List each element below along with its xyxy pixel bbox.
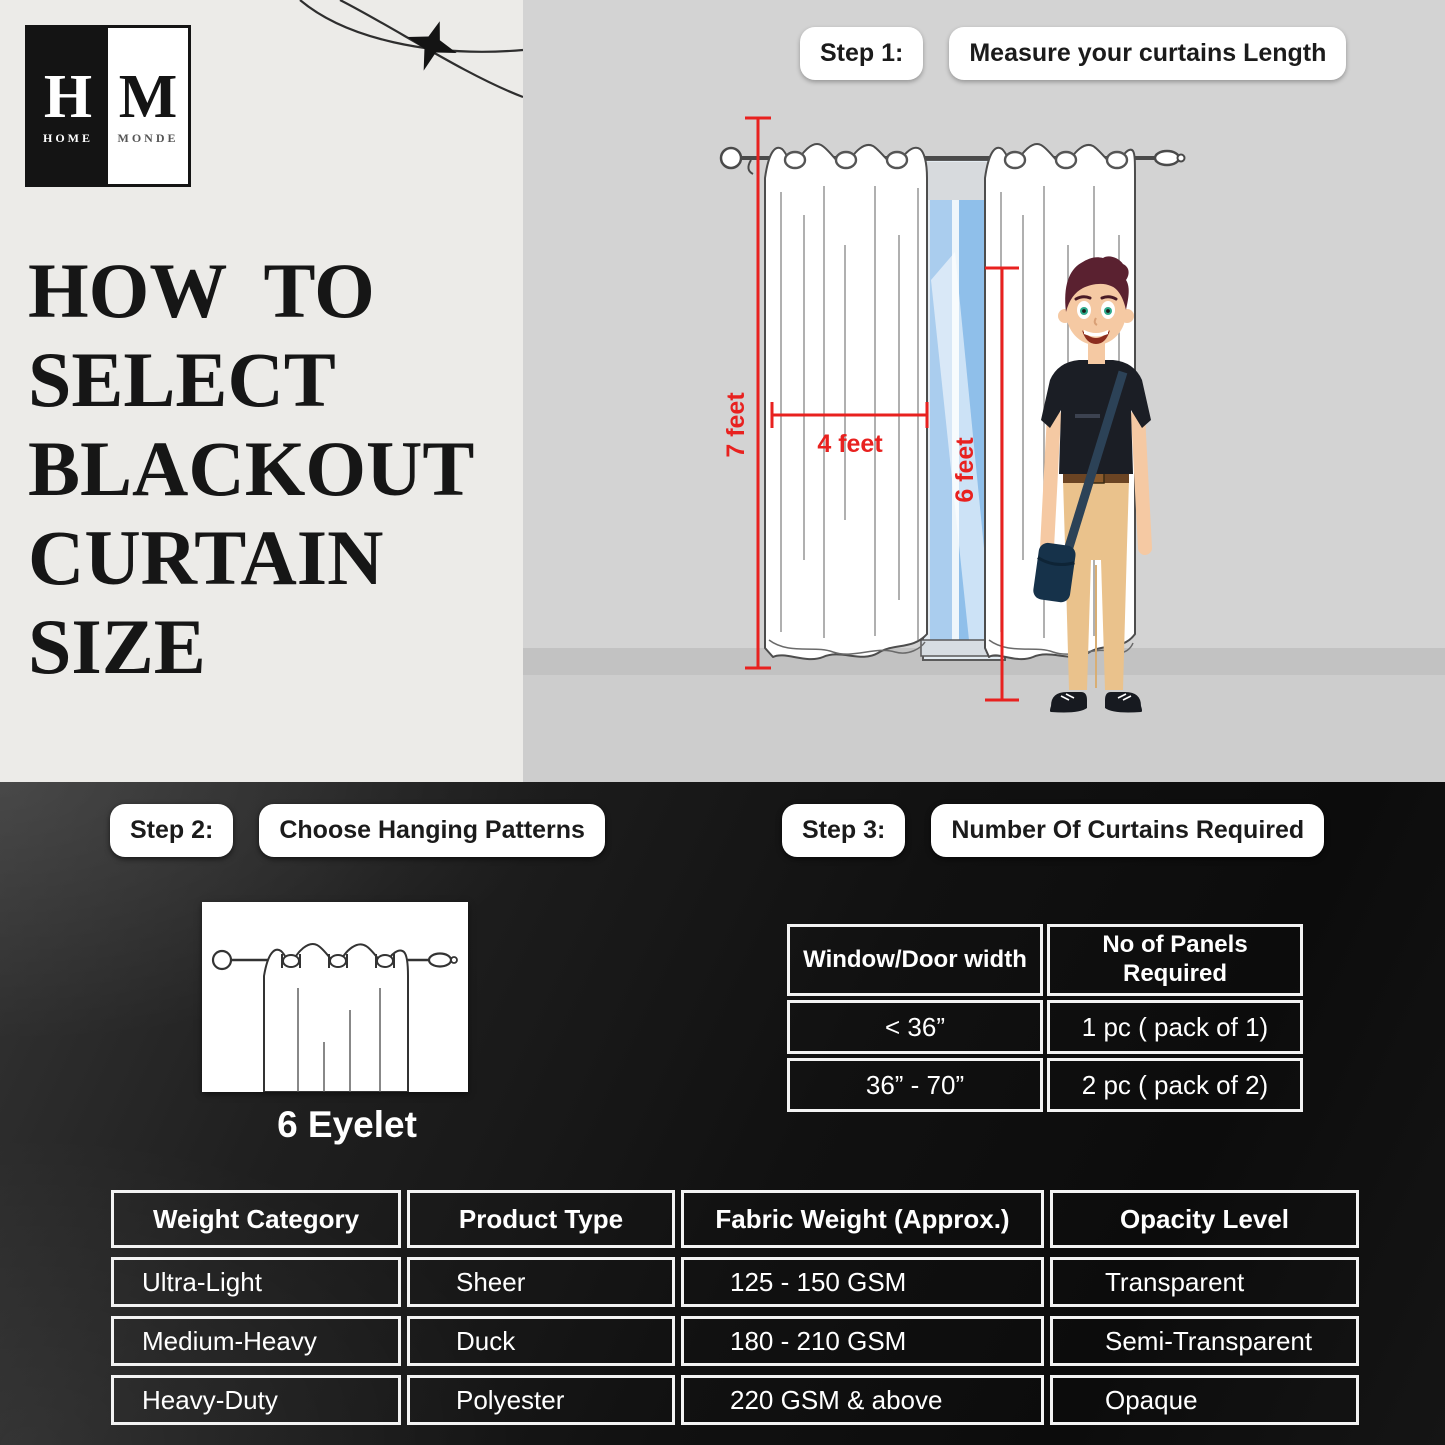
rod-finial-right <box>1155 151 1179 165</box>
eyelet-pattern-illustration <box>202 902 468 1092</box>
table-row: 36” - 70” 2 pc ( pack of 2) <box>787 1058 1303 1112</box>
left-panel: H HOME M MONDE HOW TO SELECT BLACKOUT CU… <box>0 0 523 782</box>
table-cell: Duck <box>407 1316 675 1366</box>
panels-table-header-count: No of Panels Required <box>1047 924 1303 996</box>
fabric-table-header: Weight Category <box>111 1190 401 1248</box>
measure-label-4-feet: 4 feet <box>817 430 883 458</box>
title-line-4: CURTAIN <box>28 513 518 602</box>
step3-label-pill: Step 3: <box>782 804 905 857</box>
table-cell: Polyester <box>407 1375 675 1425</box>
logo-right-half: M MONDE <box>108 28 188 184</box>
title-line-5: SIZE <box>28 602 518 691</box>
grommets-left <box>785 152 907 168</box>
table-cell: < 36” <box>787 1000 1043 1054</box>
logo-letter-m: M <box>119 67 178 127</box>
step1-text-pill: Measure your curtains Length <box>949 27 1346 80</box>
measure-label-6-feet: 6 feet <box>951 437 979 503</box>
table-cell: Transparent <box>1050 1257 1359 1307</box>
grommets-right <box>1005 152 1127 168</box>
page-title: HOW TO SELECT BLACKOUT CURTAIN SIZE <box>28 246 518 691</box>
bag <box>1032 542 1077 604</box>
brand-logo: H HOME M MONDE <box>25 25 191 187</box>
table-row: < 36” 1 pc ( pack of 1) <box>787 1000 1303 1054</box>
table-cell: Medium-Heavy <box>111 1316 401 1366</box>
step2-header: Step 2: Choose Hanging Patterns <box>110 804 605 857</box>
eyelet-caption: 6 Eyelet <box>214 1104 480 1146</box>
table-cell: Ultra-Light <box>111 1257 401 1307</box>
title-line-2: SELECT <box>28 335 518 424</box>
panels-table-header-width: Window/Door width <box>787 924 1043 996</box>
logo-word-monde: MONDE <box>118 131 179 146</box>
table-cell: Semi-Transparent <box>1050 1316 1359 1366</box>
logo-word-home: HOME <box>43 131 93 146</box>
step3-text-pill: Number Of Curtains Required <box>931 804 1324 857</box>
table-cell: 36” - 70” <box>787 1058 1043 1112</box>
eyelet-pattern-card <box>202 902 468 1092</box>
curtain-scene-illustration: 7 feet 4 feet 6 feet <box>523 0 1445 782</box>
left-curtain-panel <box>765 144 927 659</box>
infographic-page: H HOME M MONDE HOW TO SELECT BLACKOUT CU… <box>0 0 1445 1445</box>
floor <box>523 675 1445 782</box>
step2-label-pill: Step 2: <box>110 804 233 857</box>
table-cell: Opaque <box>1050 1375 1359 1425</box>
panels-required-table: Window/Door width No of Panels Required … <box>783 920 1307 1116</box>
step1-label-pill: Step 1: <box>800 27 923 80</box>
logo-left-half: H HOME <box>28 28 108 184</box>
title-line-3: BLACKOUT <box>28 424 518 513</box>
step2-text-pill: Choose Hanging Patterns <box>259 804 605 857</box>
table-cell: 125 - 150 GSM <box>681 1257 1044 1307</box>
step3-header: Step 3: Number Of Curtains Required <box>782 804 1324 857</box>
table-cell: 1 pc ( pack of 1) <box>1047 1000 1303 1054</box>
table-row: Ultra-Light Sheer 125 - 150 GSM Transpar… <box>111 1257 1359 1307</box>
bottom-section: Step 2: Choose Hanging Patterns Step 3: … <box>0 782 1445 1445</box>
step1-header: Step 1: Measure your curtains Length <box>800 27 1346 80</box>
step1-panel: 7 feet 4 feet 6 feet <box>523 0 1445 782</box>
table-cell: Heavy-Duty <box>111 1375 401 1425</box>
fabric-weight-table: Weight Category Product Type Fabric Weig… <box>105 1181 1365 1434</box>
fabric-table-header: Opacity Level <box>1050 1190 1359 1248</box>
table-cell: 180 - 210 GSM <box>681 1316 1044 1366</box>
fabric-table-header: Fabric Weight (Approx.) <box>681 1190 1044 1248</box>
table-row: Medium-Heavy Duck 180 - 210 GSM Semi-Tra… <box>111 1316 1359 1366</box>
table-cell: Sheer <box>407 1257 675 1307</box>
table-cell: 220 GSM & above <box>681 1375 1044 1425</box>
title-line-1: HOW TO <box>28 246 518 335</box>
measure-label-7-feet: 7 feet <box>722 392 750 458</box>
table-row: Heavy-Duty Polyester 220 GSM & above Opa… <box>111 1375 1359 1425</box>
logo-letter-h: H <box>44 67 92 127</box>
table-cell: 2 pc ( pack of 2) <box>1047 1058 1303 1112</box>
rod-finial-left <box>721 148 741 168</box>
fabric-table-header: Product Type <box>407 1190 675 1248</box>
